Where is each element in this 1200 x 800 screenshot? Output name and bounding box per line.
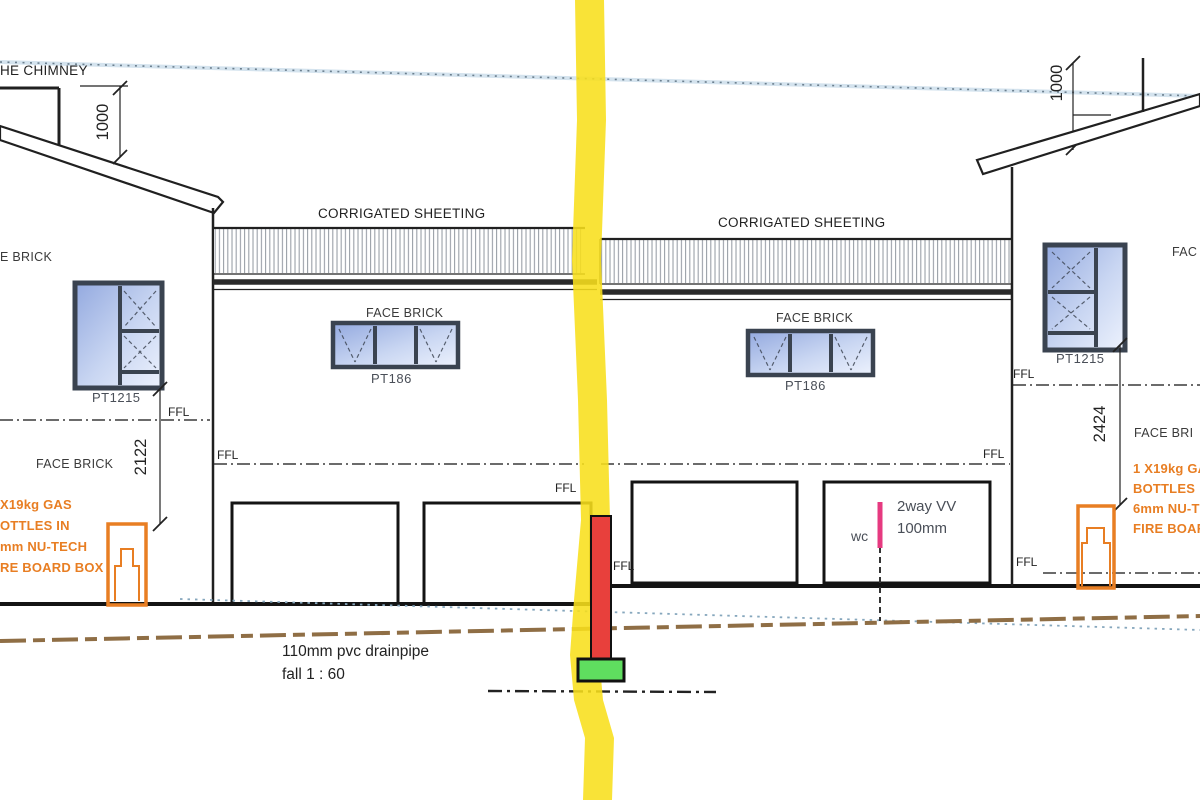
window-pt186-left	[333, 323, 458, 367]
window-label-pt1215-left: PT1215	[92, 391, 141, 404]
ffl-label-6: FFL	[1013, 368, 1034, 380]
gas-box-left	[108, 524, 146, 605]
chimney-label: HE CHIMNEY	[0, 64, 88, 78]
corrugated-label-right: CORRIGATED SHEETING	[718, 216, 885, 230]
vent-label-line2: 100mm	[897, 521, 947, 536]
elevation-drawing: HE CHIMNEY CORRIGATED SHEETING CORRIGATE…	[0, 0, 1200, 800]
ffl-label-3: FFL	[555, 482, 576, 494]
window-pt186-right	[748, 331, 873, 375]
corrugated-band-right	[600, 239, 1012, 300]
dim-right-1000: 1000	[1049, 65, 1066, 102]
gas-note-left-line4: RE BOARD BOX	[0, 561, 104, 574]
corrugated-label-left: CORRIGATED SHEETING	[318, 207, 485, 221]
gas-note-right-line3: 6mm NU-T	[1133, 502, 1200, 515]
red-stack-pipe	[591, 516, 611, 659]
face-brick-left: FACE BRICK	[36, 458, 113, 471]
gas-note-left-line3: mm NU-TECH	[0, 540, 87, 553]
ffl-label-2: FFL	[217, 449, 238, 461]
gas-box-right	[1078, 506, 1114, 588]
ffl-label-4: FFL	[613, 560, 634, 572]
ffl-label-5: FFL	[983, 448, 1004, 460]
right-roof	[977, 94, 1200, 174]
gas-note-right-line4: FIRE BOAR	[1133, 522, 1200, 535]
window-pt1215-right	[1045, 245, 1125, 350]
dim-2122-lines	[153, 382, 167, 531]
gas-note-left-line1: X19kg GAS	[0, 498, 72, 511]
window-label-pt1215-right: PT1215	[1056, 352, 1105, 365]
gas-note-left-line2: OTTLES IN	[0, 519, 70, 532]
gas-note-right-line2: BOTTLES	[1133, 482, 1195, 495]
dim-2122: 2122	[133, 439, 150, 476]
window-label-pt186-left: PT186	[371, 372, 412, 385]
corrugated-band-left	[213, 228, 597, 290]
drain-note-line1: 110mm pvc drainpipe	[282, 644, 429, 660]
face-brick-left-top: E BRICK	[0, 251, 52, 264]
face-brick-center-right: FACE BRICK	[776, 312, 853, 325]
drawing-linework	[0, 0, 1200, 800]
ffl-label-1: FFL	[168, 406, 189, 418]
face-brick-right: FACE BRI	[1134, 427, 1193, 440]
window-pt1215-left	[75, 283, 162, 388]
face-brick-right-top: FAC	[1172, 246, 1197, 259]
vent-label-line1: 2way VV	[897, 499, 956, 514]
face-brick-center-left: FACE BRICK	[366, 307, 443, 320]
dim-left-1000: 1000	[95, 104, 112, 141]
window-label-pt186-right: PT186	[785, 379, 826, 392]
wc-label: wc	[851, 529, 868, 543]
gas-note-right-line1: 1 X19kg GA	[1133, 462, 1200, 475]
ffl-label-7: FFL	[1016, 556, 1037, 568]
dim-2424-lines	[1113, 338, 1127, 512]
dim-2424: 2424	[1092, 406, 1109, 443]
drain-note-line2: fall 1 : 60	[282, 667, 345, 683]
green-gully	[578, 659, 624, 681]
